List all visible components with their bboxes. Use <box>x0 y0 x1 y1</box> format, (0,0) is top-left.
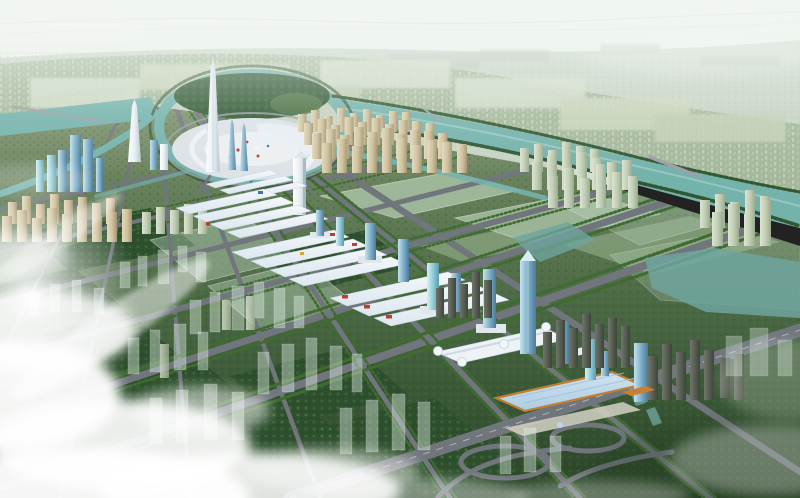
fountain <box>557 422 563 428</box>
tallest-tower <box>520 250 536 354</box>
rendering-canvas <box>0 0 800 498</box>
aerial-city-rendering <box>0 0 800 498</box>
atmospheric-haze <box>0 0 800 180</box>
